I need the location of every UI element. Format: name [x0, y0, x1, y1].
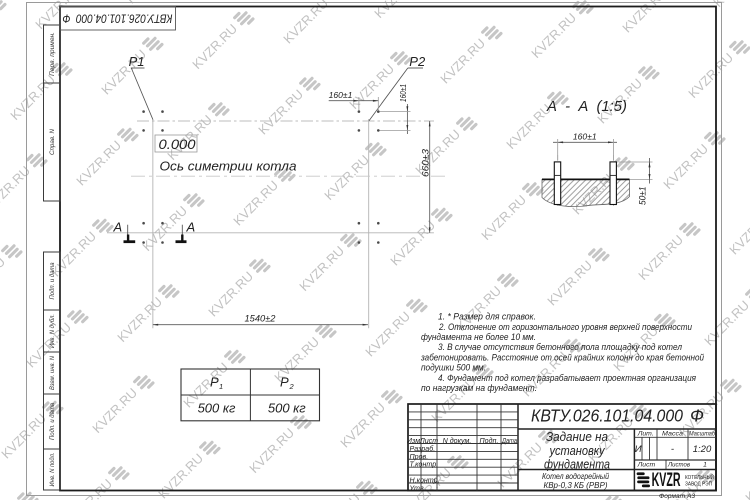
svg-text:Лист: Лист	[637, 462, 656, 469]
svg-text:1540±2: 1540±2	[245, 313, 277, 323]
svg-text:Ф: Ф	[690, 406, 704, 426]
svg-text:1:20: 1:20	[693, 444, 712, 455]
svg-text:-: -	[671, 444, 674, 455]
svg-text:3. В случае отсутствия бетонно: 3. В случае отсутствия бетонного пола пл…	[438, 342, 682, 352]
svg-text:1: 1	[219, 382, 223, 391]
svg-text:P1: P1	[129, 54, 145, 69]
svg-text:Листов: Листов	[667, 462, 690, 469]
svg-text:фундамента: фундамента	[544, 457, 610, 472]
svg-text:Н.контр.: Н.контр.	[410, 477, 440, 485]
svg-text:КОТЕЛЬНЫЙ: КОТЕЛЬНЫЙ	[685, 473, 714, 481]
svg-text:Масса: Масса	[662, 430, 683, 437]
svg-text:Справ. N: Справ. N	[49, 129, 56, 155]
svg-text:500 кг: 500 кг	[198, 400, 236, 415]
svg-text:КВТУ.026.101.04.000 Ф: КВТУ.026.101.04.000 Ф	[62, 11, 172, 25]
svg-text:50±1: 50±1	[637, 187, 647, 206]
svg-text:ЗАВОД РЭП: ЗАВОД РЭП	[685, 481, 712, 487]
svg-text:А: А	[113, 220, 123, 235]
svg-text:фундамента не более 10 мм.: фундамента не более 10 мм.	[421, 332, 536, 342]
svg-text:4. Фундамент под котел разраба: 4. Фундамент под котел разрабатывает про…	[438, 373, 696, 383]
svg-text:Дата: Дата	[501, 437, 517, 445]
svg-text:1: 1	[703, 462, 707, 469]
svg-text:660±3: 660±3	[421, 148, 432, 177]
svg-text:2. Отклонение от горизонтально: 2. Отклонение от горизонтального уровня …	[438, 322, 692, 332]
svg-text:Масштаб: Масштаб	[689, 429, 716, 437]
svg-text:Инв. N дубл.: Инв. N дубл.	[48, 314, 56, 348]
svg-text:KVZR: KVZR	[652, 469, 681, 491]
svg-text:А: А	[186, 220, 196, 235]
svg-text:Лист: Лист	[419, 437, 438, 445]
svg-text:И: И	[635, 444, 642, 455]
svg-text:160±1: 160±1	[329, 90, 353, 100]
svg-text:1. * Размер для справок.: 1. * Размер для справок.	[438, 312, 536, 322]
svg-text:P: P	[210, 375, 219, 390]
svg-text:А - А (1:5): А - А (1:5)	[546, 99, 627, 115]
svg-text:Пров.: Пров.	[410, 453, 429, 461]
svg-text:0.000: 0.000	[159, 137, 197, 152]
svg-text:подушки 500 мм.: подушки 500 мм.	[421, 363, 486, 373]
svg-text:Инв. N подл.: Инв. N подл.	[48, 453, 56, 487]
svg-text:Котел водогрейный: Котел водогрейный	[542, 472, 609, 481]
svg-text:КВр-0,3 КБ (РВР): КВр-0,3 КБ (РВР)	[544, 481, 608, 490]
svg-text:Подп. и дата: Подп. и дата	[48, 262, 56, 299]
svg-text:по нагрузкам на фундамент.: по нагрузкам на фундамент.	[421, 383, 537, 393]
svg-text:P: P	[280, 375, 289, 390]
svg-text:Подп. и дата: Подп. и дата	[48, 403, 56, 440]
svg-text:P2: P2	[409, 54, 426, 69]
svg-text:Т.контр.: Т.контр.	[410, 461, 439, 469]
svg-text:Лит.: Лит.	[637, 430, 654, 437]
svg-text:Подп.: Подп.	[480, 437, 499, 445]
svg-text:160±1: 160±1	[398, 84, 408, 102]
svg-text:500 кг: 500 кг	[268, 400, 306, 415]
svg-text:Формат А3: Формат А3	[659, 493, 695, 500]
svg-text:забетонировать. Расстояние от: забетонировать. Расстояние от осей крайн…	[420, 352, 704, 362]
svg-text:N докум.: N докум.	[443, 437, 472, 445]
svg-text:Задание на: Задание на	[546, 429, 608, 444]
svg-text:Ось симетрии котла: Ось симетрии котла	[160, 158, 297, 173]
svg-text:Перв. примен.: Перв. примен.	[49, 32, 56, 76]
svg-text:Разраб.: Разраб.	[410, 445, 436, 453]
svg-text:Утв.: Утв.	[409, 484, 426, 492]
svg-text:Взам. инв. N: Взам. инв. N	[49, 356, 56, 390]
svg-text:2: 2	[289, 382, 295, 391]
svg-text:КВТУ.026.101.04.000: КВТУ.026.101.04.000	[531, 406, 683, 426]
svg-text:160±1: 160±1	[573, 132, 597, 142]
